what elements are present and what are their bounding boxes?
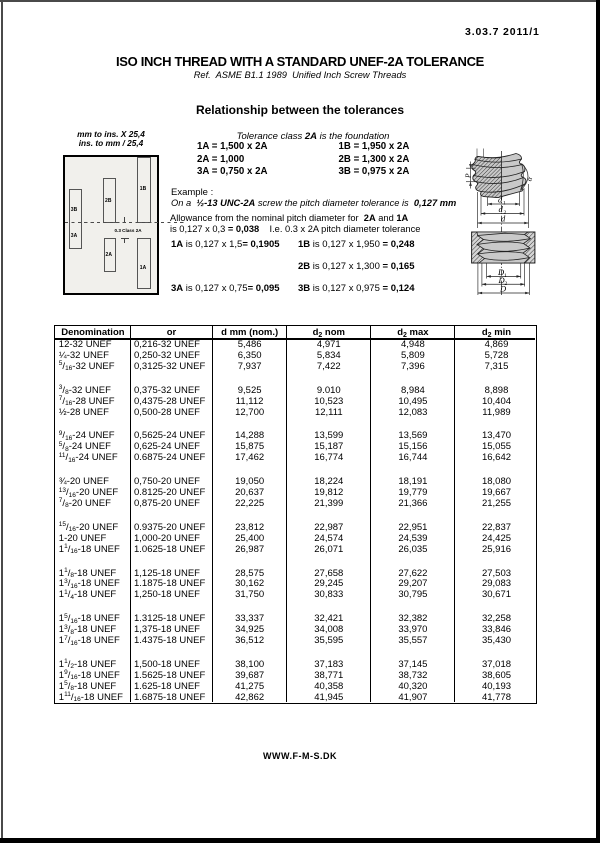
- svg-text:D: D: [499, 284, 507, 294]
- svg-text:P: P: [464, 173, 473, 179]
- svg-text:1: 1: [503, 201, 506, 207]
